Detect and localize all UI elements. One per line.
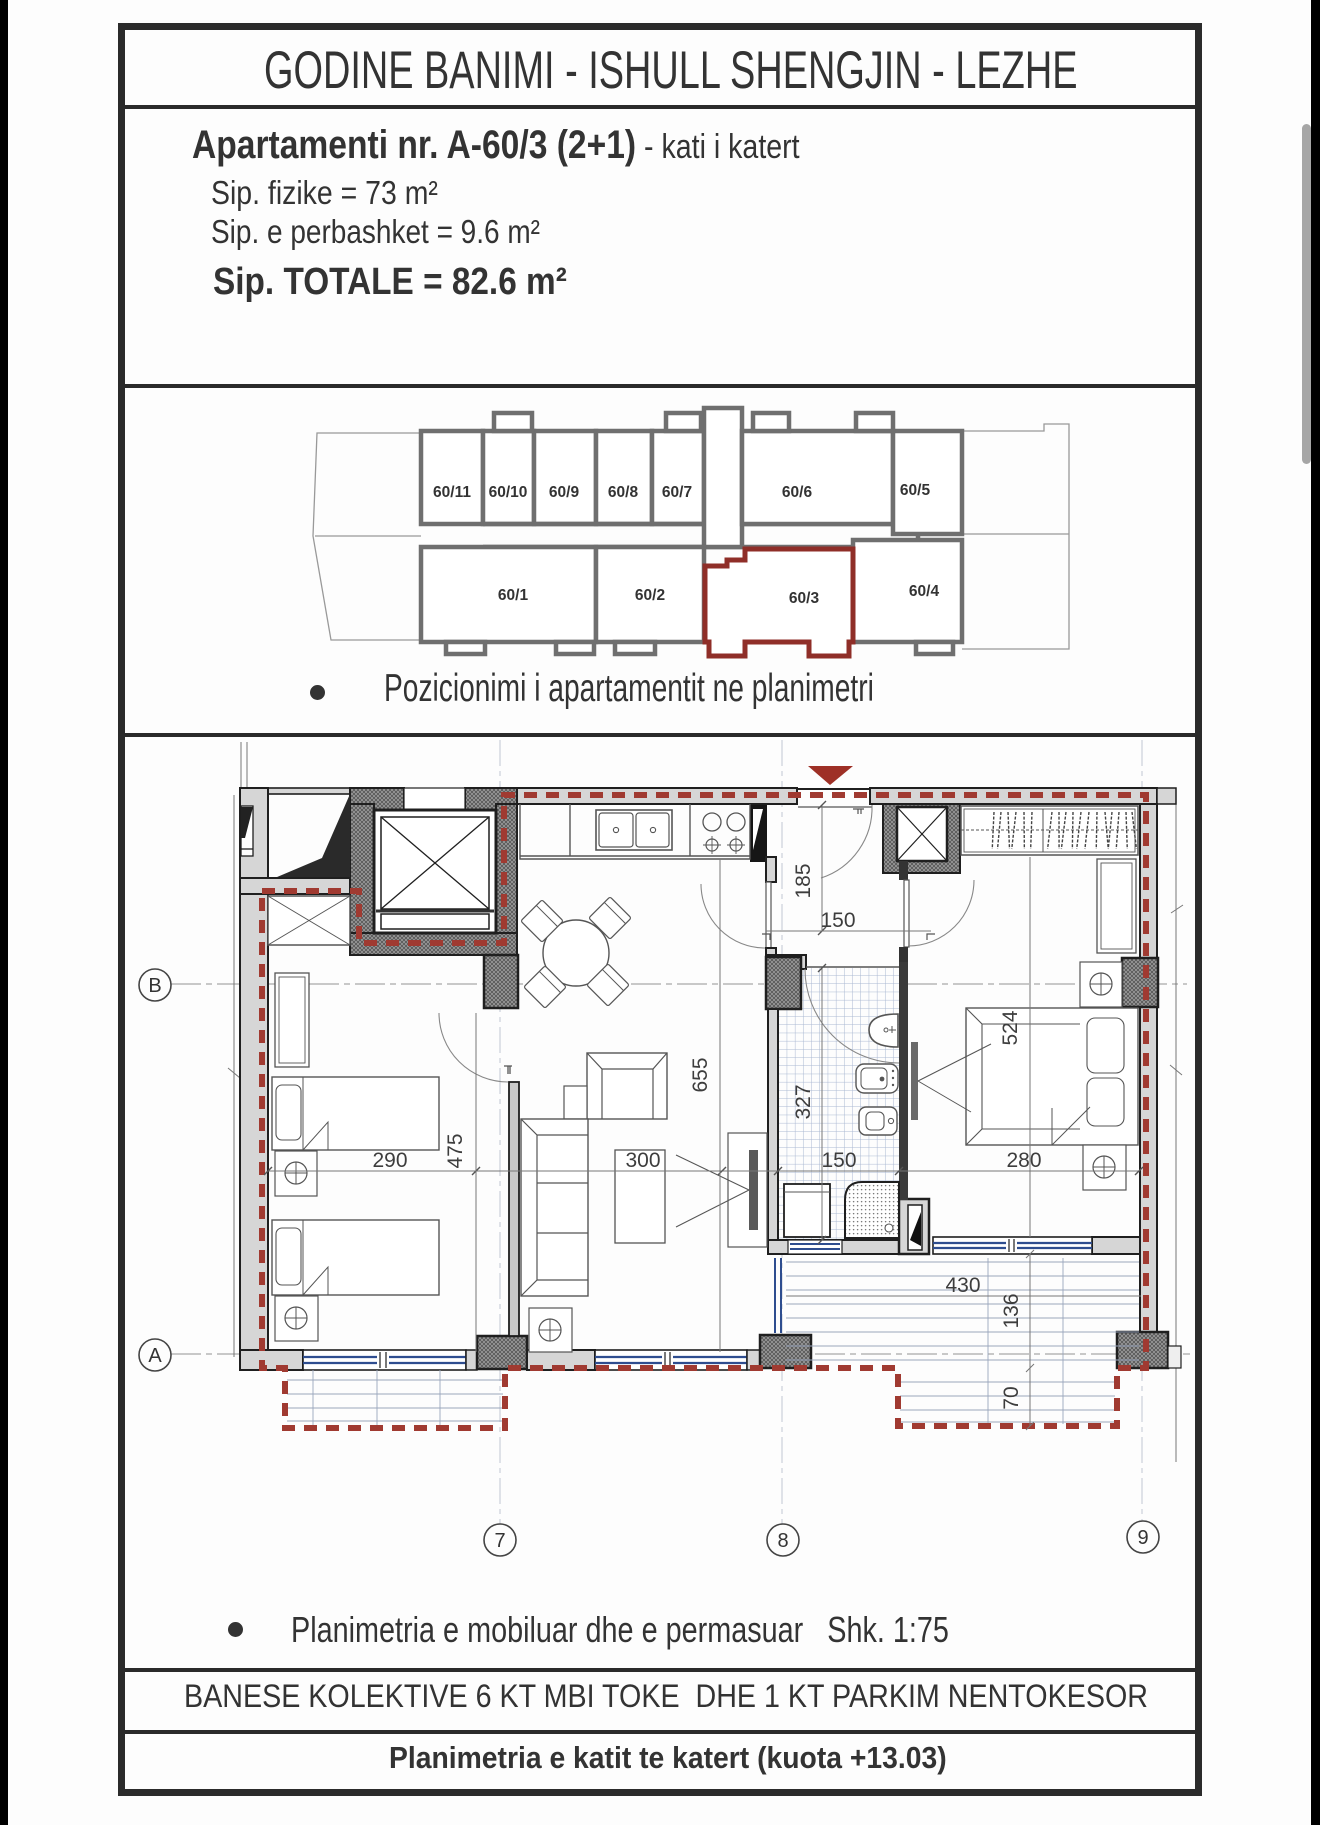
svg-text:60/3: 60/3: [789, 590, 820, 607]
svg-text:150: 150: [821, 1149, 856, 1172]
svg-text:300: 300: [625, 1149, 660, 1172]
svg-text:430: 430: [945, 1274, 980, 1297]
svg-text:60/7: 60/7: [662, 484, 692, 501]
svg-text:60/8: 60/8: [608, 484, 639, 501]
svg-text:9: 9: [1137, 1527, 1148, 1549]
svg-text:60/11: 60/11: [433, 484, 471, 501]
svg-text:655: 655: [689, 1057, 712, 1092]
svg-text:60/10: 60/10: [489, 484, 528, 501]
svg-text:136: 136: [1000, 1293, 1023, 1328]
svg-text:185: 185: [792, 863, 815, 898]
svg-text:327: 327: [792, 1084, 815, 1119]
svg-text:B: B: [148, 975, 161, 997]
svg-text:70: 70: [1000, 1386, 1023, 1409]
svg-text:60/1: 60/1: [498, 587, 529, 604]
svg-text:8: 8: [777, 1530, 788, 1552]
svg-text:A: A: [148, 1345, 162, 1367]
svg-text:290: 290: [372, 1149, 407, 1172]
svg-text:475: 475: [444, 1133, 467, 1168]
svg-text:60/9: 60/9: [549, 484, 580, 501]
svg-text:60/4: 60/4: [909, 583, 940, 600]
svg-text:60/6: 60/6: [782, 484, 813, 501]
svg-text:150: 150: [820, 909, 855, 932]
svg-text:60/2: 60/2: [635, 587, 665, 604]
svg-text:7: 7: [494, 1530, 505, 1552]
svg-text:524: 524: [999, 1010, 1022, 1045]
svg-text:60/5: 60/5: [900, 482, 931, 499]
svg-text:280: 280: [1006, 1149, 1041, 1172]
